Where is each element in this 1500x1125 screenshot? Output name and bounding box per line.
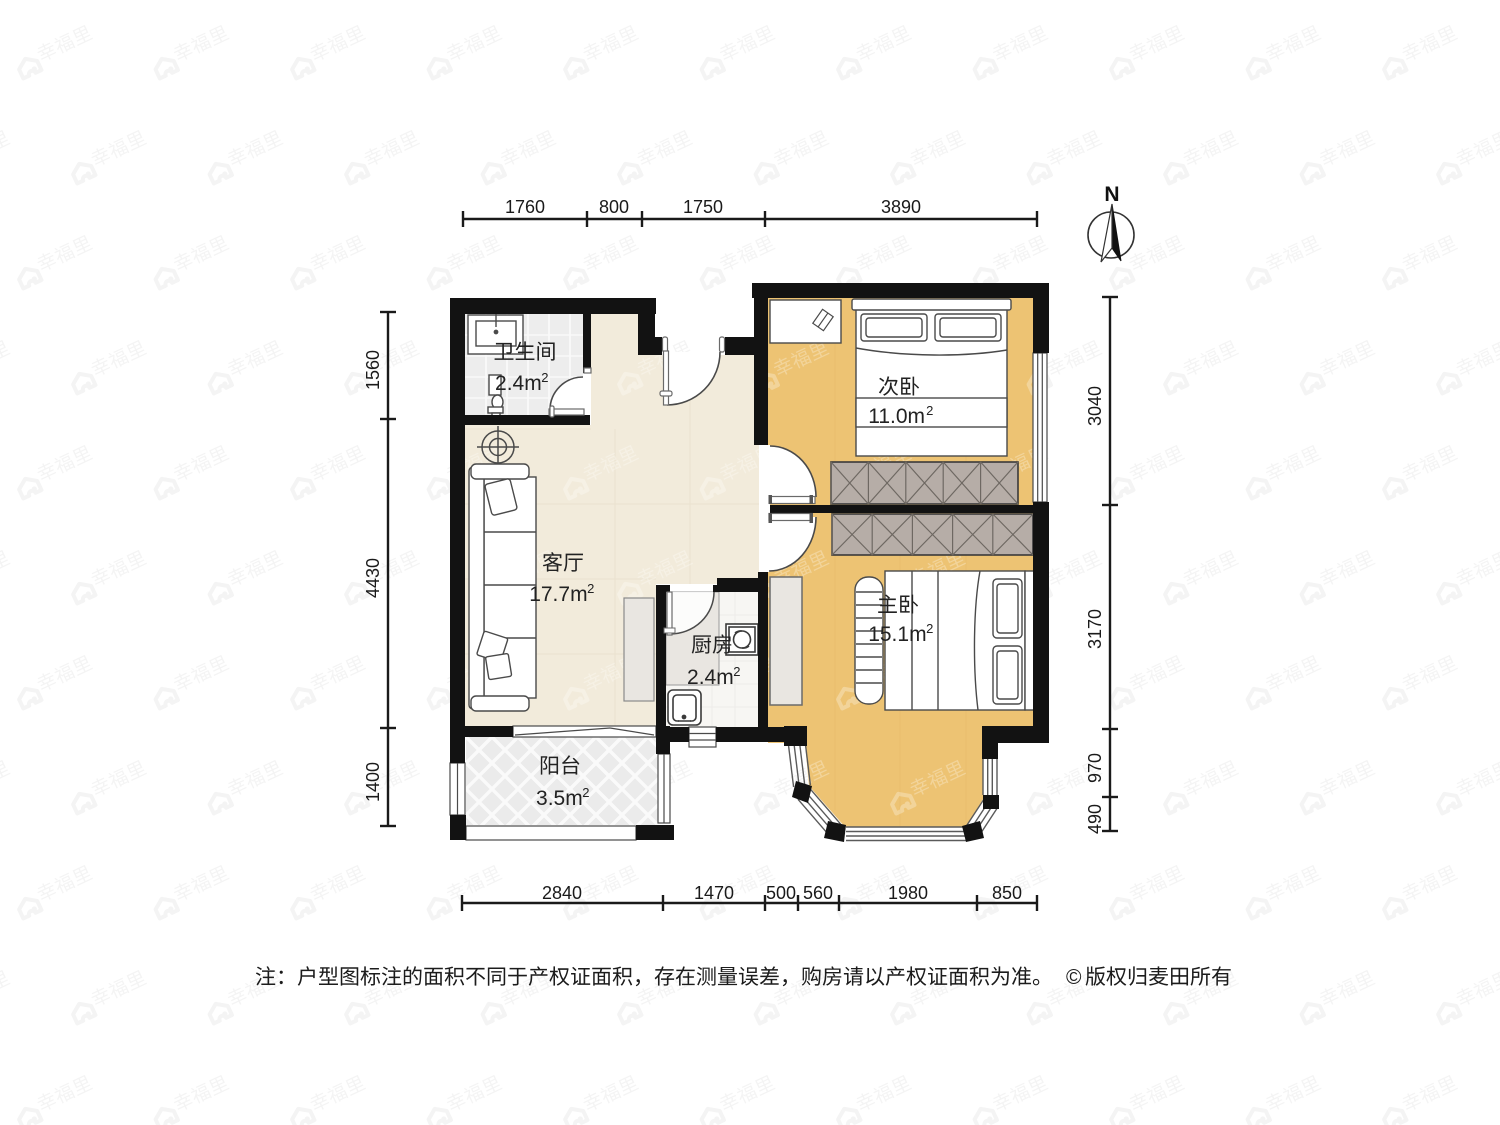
svg-text:1980: 1980 <box>888 883 928 903</box>
svg-text:1560: 1560 <box>363 350 383 390</box>
svg-text:850: 850 <box>992 883 1022 903</box>
svg-text:2840: 2840 <box>542 883 582 903</box>
svg-text:2.4m: 2.4m <box>687 666 734 689</box>
svg-text:3040: 3040 <box>1085 386 1105 426</box>
svg-text:2.4m: 2.4m <box>495 372 542 395</box>
svg-text:1750: 1750 <box>683 197 723 217</box>
svg-text:3170: 3170 <box>1085 609 1105 649</box>
svg-text:2: 2 <box>926 621 933 636</box>
svg-text:2: 2 <box>733 664 740 679</box>
svg-text:15.1m: 15.1m <box>868 623 926 646</box>
svg-text:17.7m: 17.7m <box>529 583 587 606</box>
svg-text:560: 560 <box>803 883 833 903</box>
svg-text:2: 2 <box>587 581 594 596</box>
svg-text:500: 500 <box>766 883 796 903</box>
svg-text:2: 2 <box>541 370 548 385</box>
svg-text:4430: 4430 <box>363 558 383 598</box>
svg-text:1470: 1470 <box>694 883 734 903</box>
svg-text:2: 2 <box>582 785 589 800</box>
svg-text:3.5m: 3.5m <box>536 787 583 810</box>
svg-text:800: 800 <box>599 197 629 217</box>
svg-text:11.0m: 11.0m <box>868 405 925 428</box>
svg-text:N: N <box>1104 183 1119 206</box>
svg-text:©: © <box>1066 966 1082 989</box>
svg-text:2: 2 <box>926 403 933 418</box>
svg-text:490: 490 <box>1085 804 1105 834</box>
svg-text:3890: 3890 <box>881 197 921 217</box>
svg-text:1400: 1400 <box>363 762 383 802</box>
svg-text:970: 970 <box>1085 753 1105 783</box>
svg-text:1760: 1760 <box>505 197 545 217</box>
